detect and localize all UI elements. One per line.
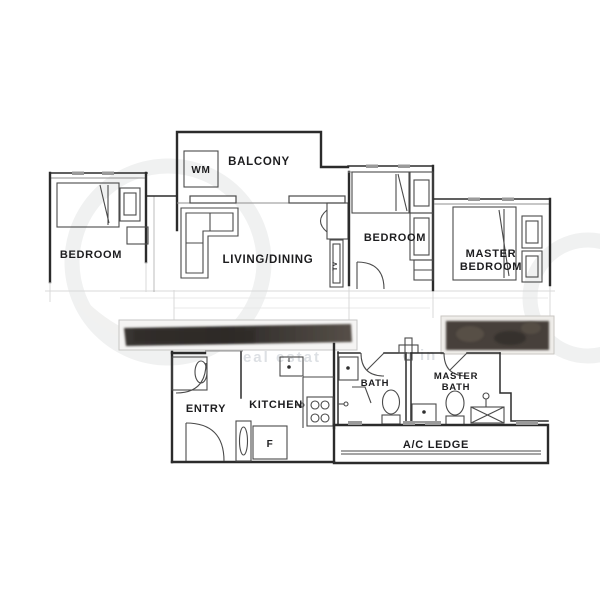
- window-tick: [502, 198, 514, 202]
- shower-head-icon: [483, 393, 489, 399]
- wardrobe-inner: [124, 193, 136, 215]
- ac-ledge: A/C LEDGE: [334, 421, 548, 463]
- kitchen-label: KITCHEN: [249, 399, 303, 411]
- tv-label: TV: [332, 261, 339, 271]
- master-bedroom-label-line1: MASTER: [466, 248, 517, 260]
- entry-door-arc: [186, 423, 224, 461]
- sliding-door-panel: [289, 196, 345, 203]
- cabinet-icon: [327, 203, 348, 239]
- ac-ledge-label: A/C LEDGE: [403, 439, 469, 451]
- balcony-label: BALCONY: [228, 156, 290, 168]
- wall: [500, 353, 548, 421]
- toilet-icon: [383, 390, 400, 414]
- stove-burner: [321, 414, 329, 422]
- wardrobe-inner: [414, 180, 429, 206]
- stove-burner: [311, 414, 319, 422]
- fridge-label: F: [267, 439, 274, 450]
- sink-drain: [346, 366, 350, 370]
- nightstand-inner: [526, 221, 538, 243]
- master-bath-label-line2: BATH: [442, 382, 470, 393]
- sliding-door-panel: [190, 196, 236, 203]
- master-bath-label-line1: MASTER: [434, 371, 478, 382]
- redaction-smudge: [134, 330, 254, 342]
- wall-stub: [425, 421, 441, 425]
- toilet-icon: [446, 391, 464, 415]
- wall-stub: [516, 421, 538, 425]
- door-arc: [357, 262, 384, 289]
- window-tick: [468, 198, 480, 202]
- window-tick: [398, 165, 410, 169]
- bedroom-middle: BEDROOM: [348, 165, 433, 291]
- living-dining-label: LIVING/DINING: [223, 254, 314, 266]
- sink-drain: [287, 365, 291, 369]
- door-leaf: [367, 353, 384, 370]
- bath: BATH: [338, 352, 406, 425]
- bed-icon: [352, 172, 409, 213]
- stove-burner: [321, 401, 329, 409]
- bed-fold-line: [398, 174, 407, 211]
- washing-machine-label: WM: [191, 165, 210, 176]
- wall-stub: [348, 421, 362, 425]
- window-tick: [72, 172, 84, 176]
- door-leaf: [450, 353, 467, 370]
- redaction-smudge: [456, 326, 484, 342]
- watermark-fragment: o in: [403, 347, 438, 364]
- bedroom-middle-label: BEDROOM: [364, 232, 426, 244]
- cabinet-door-arc: [321, 210, 328, 232]
- floor-plan-image: WM BALCONY BEDROOM TV LIVING/DINING: [0, 0, 600, 600]
- shower-screen: [352, 387, 371, 403]
- shower-faucet-head: [344, 402, 348, 406]
- redaction-smudge: [521, 322, 541, 334]
- door-arc: [176, 363, 206, 393]
- window-tick: [102, 172, 114, 176]
- redaction-right: [441, 316, 554, 354]
- wall-stub: [403, 421, 415, 425]
- bedroom-left-label: BEDROOM: [60, 249, 122, 261]
- redaction-smudge: [494, 331, 526, 345]
- redaction-left: [119, 320, 357, 350]
- stove-burner: [311, 401, 319, 409]
- entry-label: ENTRY: [186, 403, 226, 415]
- master-bedroom-label-line2: BEDROOM: [460, 261, 522, 273]
- toilet-cistern: [446, 416, 464, 425]
- floor-plan-svg: WM BALCONY BEDROOM TV LIVING/DINING: [0, 0, 600, 600]
- toilet-cistern: [382, 415, 400, 424]
- stove-icon: [307, 397, 333, 426]
- window-tick: [366, 165, 378, 169]
- pocket-door-panel: [240, 427, 248, 455]
- bath-label: BATH: [361, 378, 389, 389]
- sink-drain: [422, 410, 426, 414]
